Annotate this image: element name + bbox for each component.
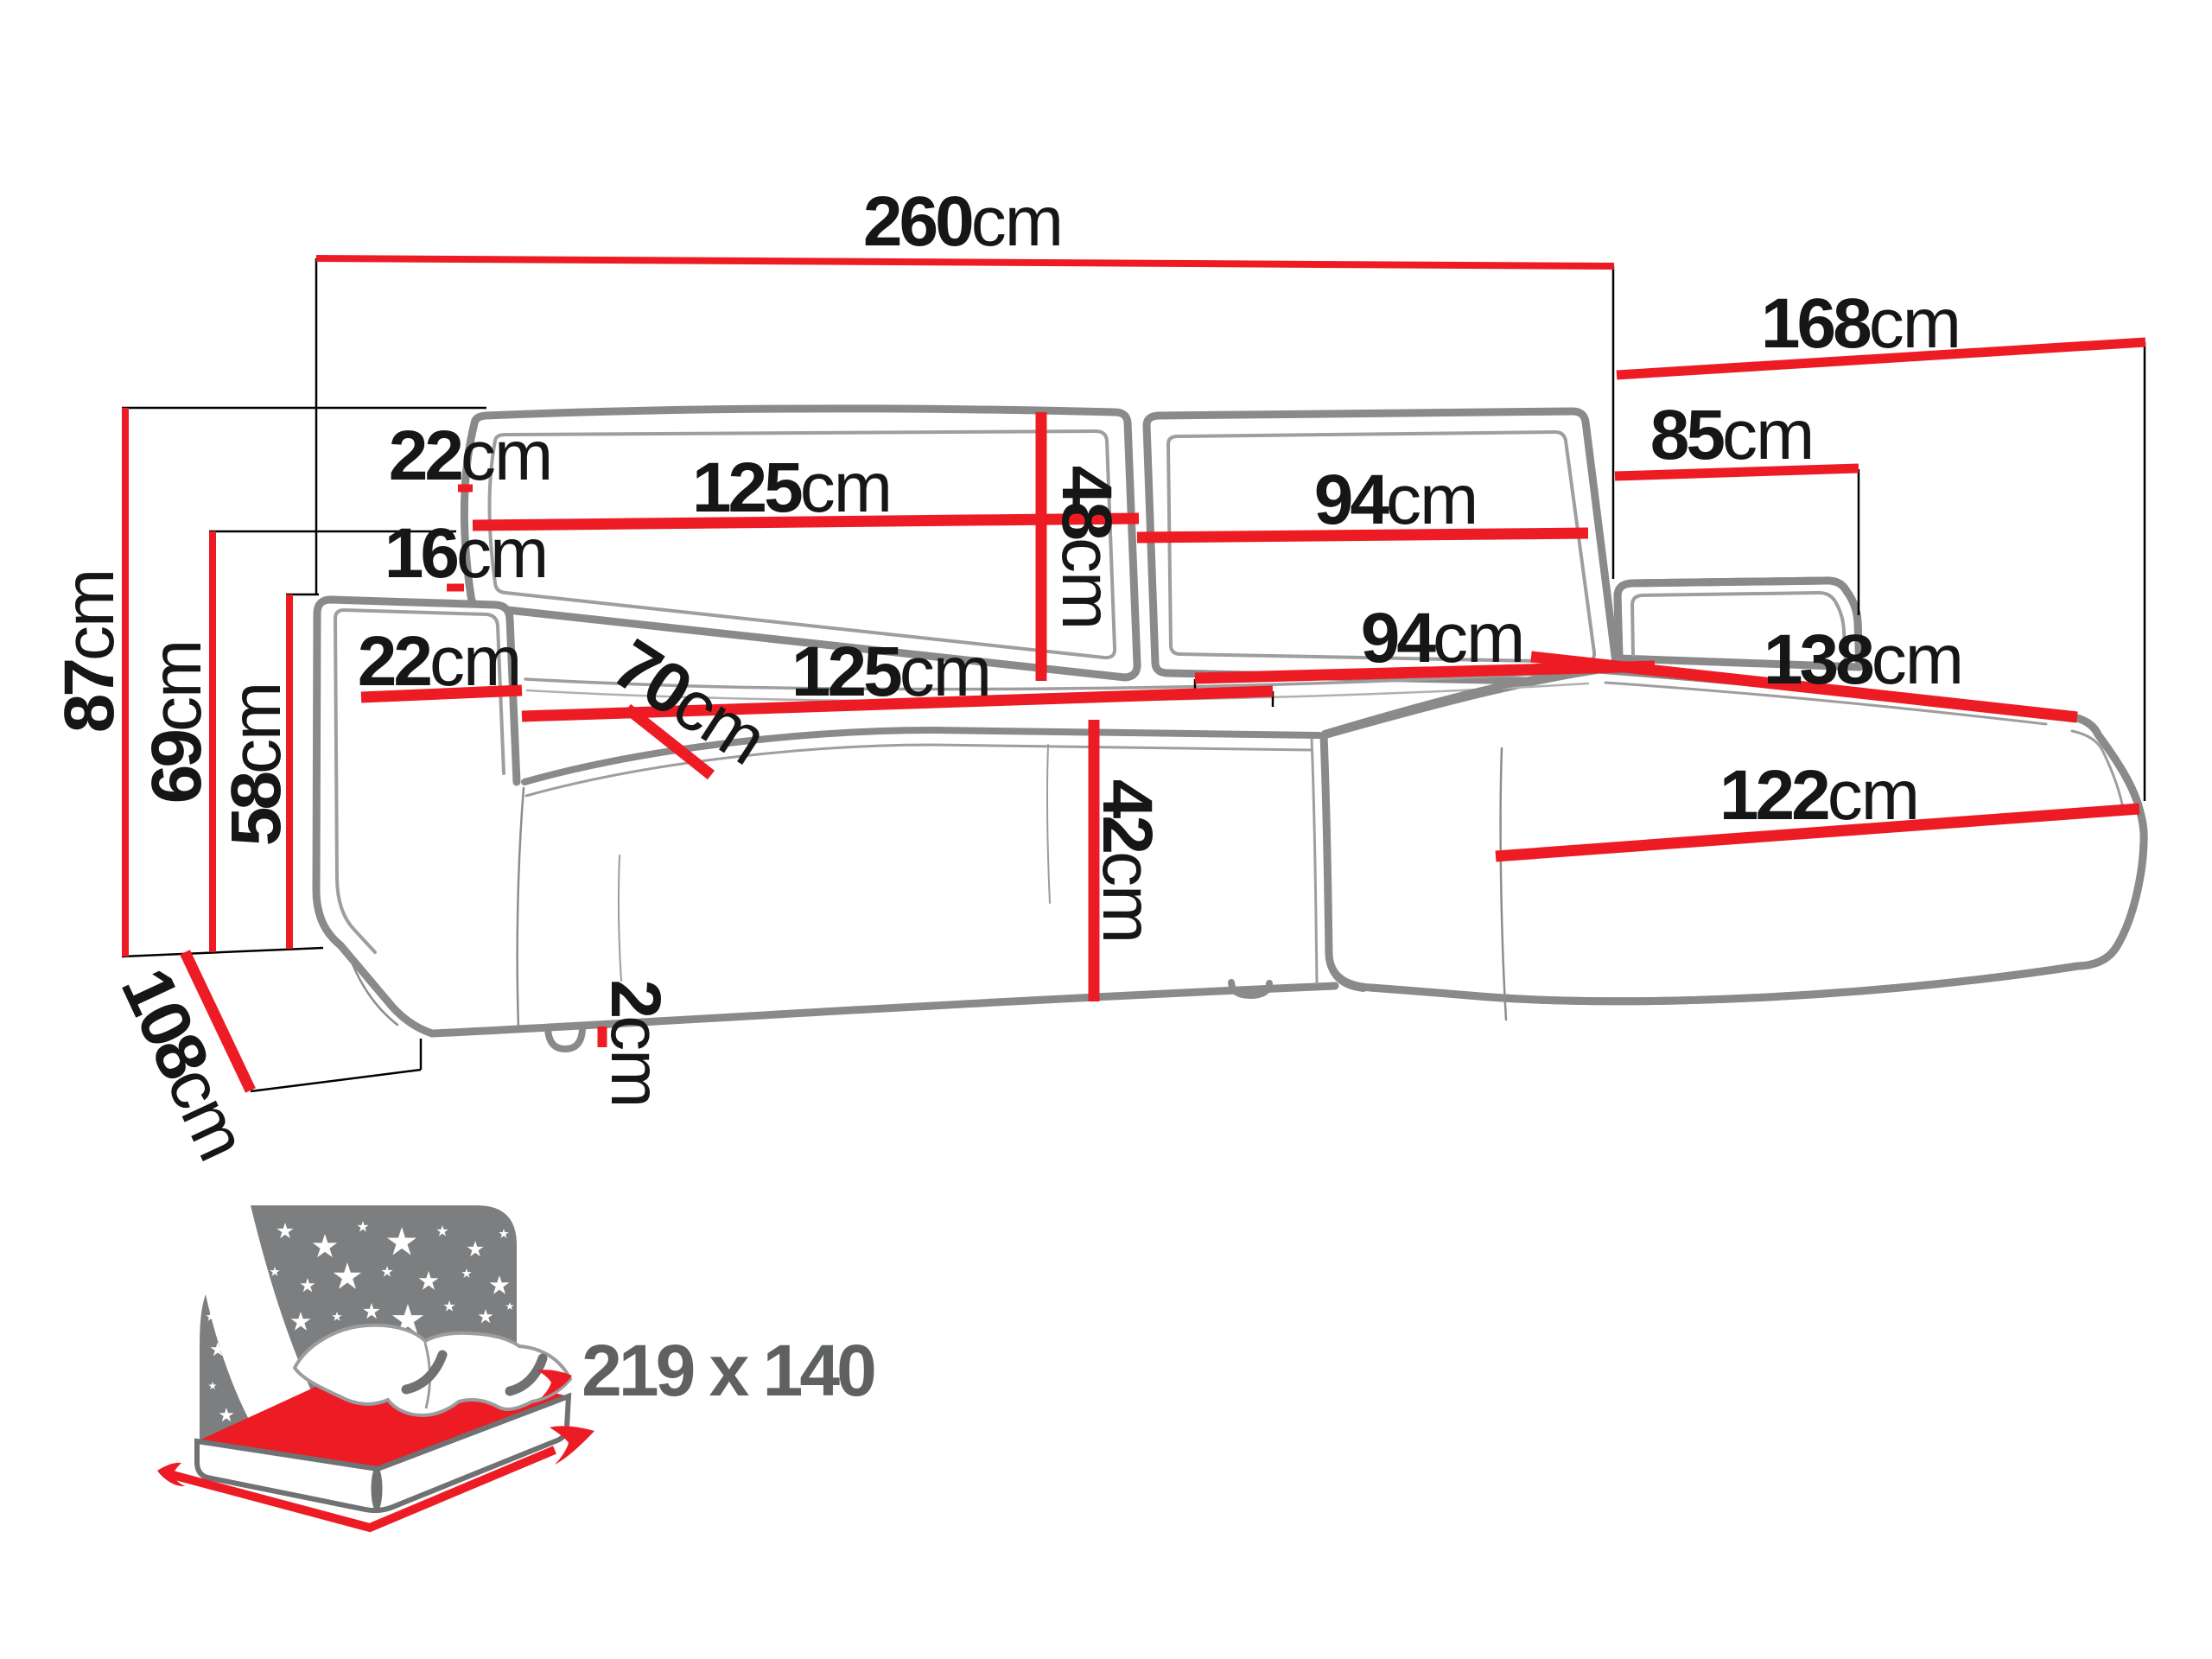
svg-text:168cm: 168cm [1761,284,1960,363]
svg-text:2cm: 2cm [596,980,675,1107]
svg-text:125cm: 125cm [791,632,990,711]
svg-text:260cm: 260cm [863,182,1062,261]
svg-text:16cm: 16cm [385,514,548,593]
svg-text:58cm: 58cm [217,683,296,847]
svg-text:219 x 140: 219 x 140 [582,1330,874,1411]
svg-text:42cm: 42cm [1088,779,1166,943]
svg-text:22cm: 22cm [358,622,521,701]
svg-text:48cm: 48cm [1047,466,1126,629]
svg-text:138cm: 138cm [1764,620,1962,699]
svg-text:122cm: 122cm [1719,756,1918,835]
svg-text:94cm: 94cm [1361,599,1524,677]
svg-text:94cm: 94cm [1314,461,1478,539]
svg-text:22cm: 22cm [389,416,552,495]
svg-text:69cm: 69cm [137,641,216,804]
svg-text:85cm: 85cm [1650,396,1814,474]
svg-text:87cm: 87cm [50,570,129,734]
svg-text:125cm: 125cm [692,448,891,527]
